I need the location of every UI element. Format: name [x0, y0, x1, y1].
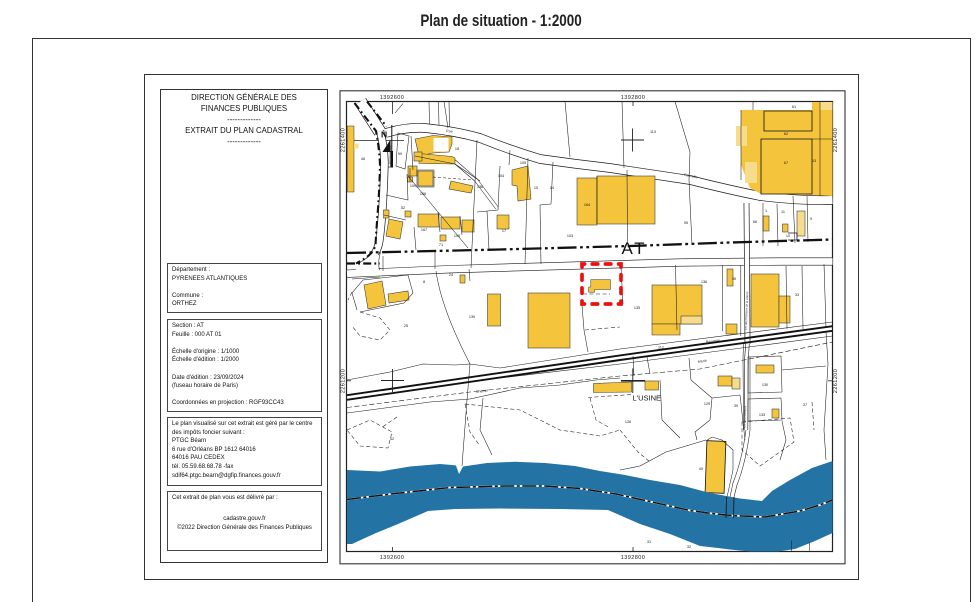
svg-text:136: 136	[477, 185, 483, 189]
svg-text:108: 108	[454, 234, 460, 238]
svg-text:15: 15	[534, 186, 538, 190]
svg-text:17: 17	[502, 229, 506, 233]
svg-text:312: 312	[658, 345, 664, 350]
svg-text:L'USINE: L'USINE	[633, 394, 662, 403]
svg-text:104: 104	[498, 174, 504, 178]
svg-text:N: N	[381, 130, 387, 140]
svg-text:139: 139	[469, 315, 475, 319]
svg-text:25: 25	[404, 324, 408, 328]
svg-text:1392800: 1392800	[621, 95, 646, 101]
svg-text:31: 31	[647, 540, 651, 544]
svg-text:105: 105	[520, 161, 526, 165]
svg-text:32: 32	[687, 545, 691, 549]
svg-text:2261400: 2261400	[833, 128, 839, 153]
svg-text:95: 95	[684, 221, 688, 225]
svg-text:66: 66	[753, 220, 757, 224]
svg-text:AT: AT	[622, 239, 647, 258]
svg-text:136: 136	[701, 280, 707, 284]
svg-text:164: 164	[584, 203, 590, 207]
svg-text:33: 33	[795, 293, 799, 297]
svg-text:126: 126	[625, 420, 631, 424]
svg-text:67: 67	[784, 161, 788, 165]
svg-text:1392800: 1392800	[621, 555, 646, 561]
svg-text:167: 167	[421, 228, 427, 232]
svg-text:108: 108	[420, 192, 426, 196]
svg-text:R. de l'Ourdissage: R. de l'Ourdissage	[388, 145, 393, 168]
svg-text:1392600: 1392600	[380, 555, 405, 561]
svg-text:1: 1	[765, 209, 767, 213]
svg-text:Ch. des Pêcheurs: Ch. des Pêcheurs	[743, 405, 748, 428]
svg-text:9: 9	[810, 217, 812, 221]
svg-text:52: 52	[401, 206, 405, 210]
svg-text:113: 113	[650, 130, 656, 134]
svg-text:63: 63	[812, 159, 816, 163]
svg-text:99: 99	[398, 152, 402, 156]
svg-text:11: 11	[781, 210, 785, 214]
svg-text:8: 8	[423, 280, 425, 284]
svg-text:130: 130	[762, 383, 768, 387]
svg-text:71: 71	[439, 243, 443, 247]
svg-text:62: 62	[784, 132, 788, 136]
svg-text:103: 103	[567, 234, 573, 238]
svg-text:129: 129	[704, 402, 710, 406]
svg-text:37: 37	[803, 403, 807, 407]
svg-text:10: 10	[786, 234, 790, 238]
svg-text:35: 35	[732, 277, 736, 281]
svg-text:135: 135	[634, 306, 640, 310]
svg-text:Rue: Rue	[446, 129, 453, 134]
svg-text:40: 40	[699, 467, 703, 471]
svg-text:109: 109	[410, 184, 416, 188]
svg-text:2261200: 2261200	[833, 369, 839, 394]
svg-text:14: 14	[550, 186, 554, 190]
svg-text:42: 42	[390, 437, 394, 441]
svg-text:39: 39	[734, 404, 738, 408]
svg-text:61: 61	[792, 105, 796, 109]
svg-text:24: 24	[449, 273, 453, 277]
svg-text:133: 133	[759, 413, 765, 417]
svg-text:18: 18	[455, 147, 459, 151]
svg-text:46: 46	[361, 157, 365, 161]
svg-text:2261200: 2261200	[341, 369, 347, 394]
svg-text:1392600: 1392600	[380, 95, 405, 101]
svg-text:2261400: 2261400	[341, 128, 347, 153]
